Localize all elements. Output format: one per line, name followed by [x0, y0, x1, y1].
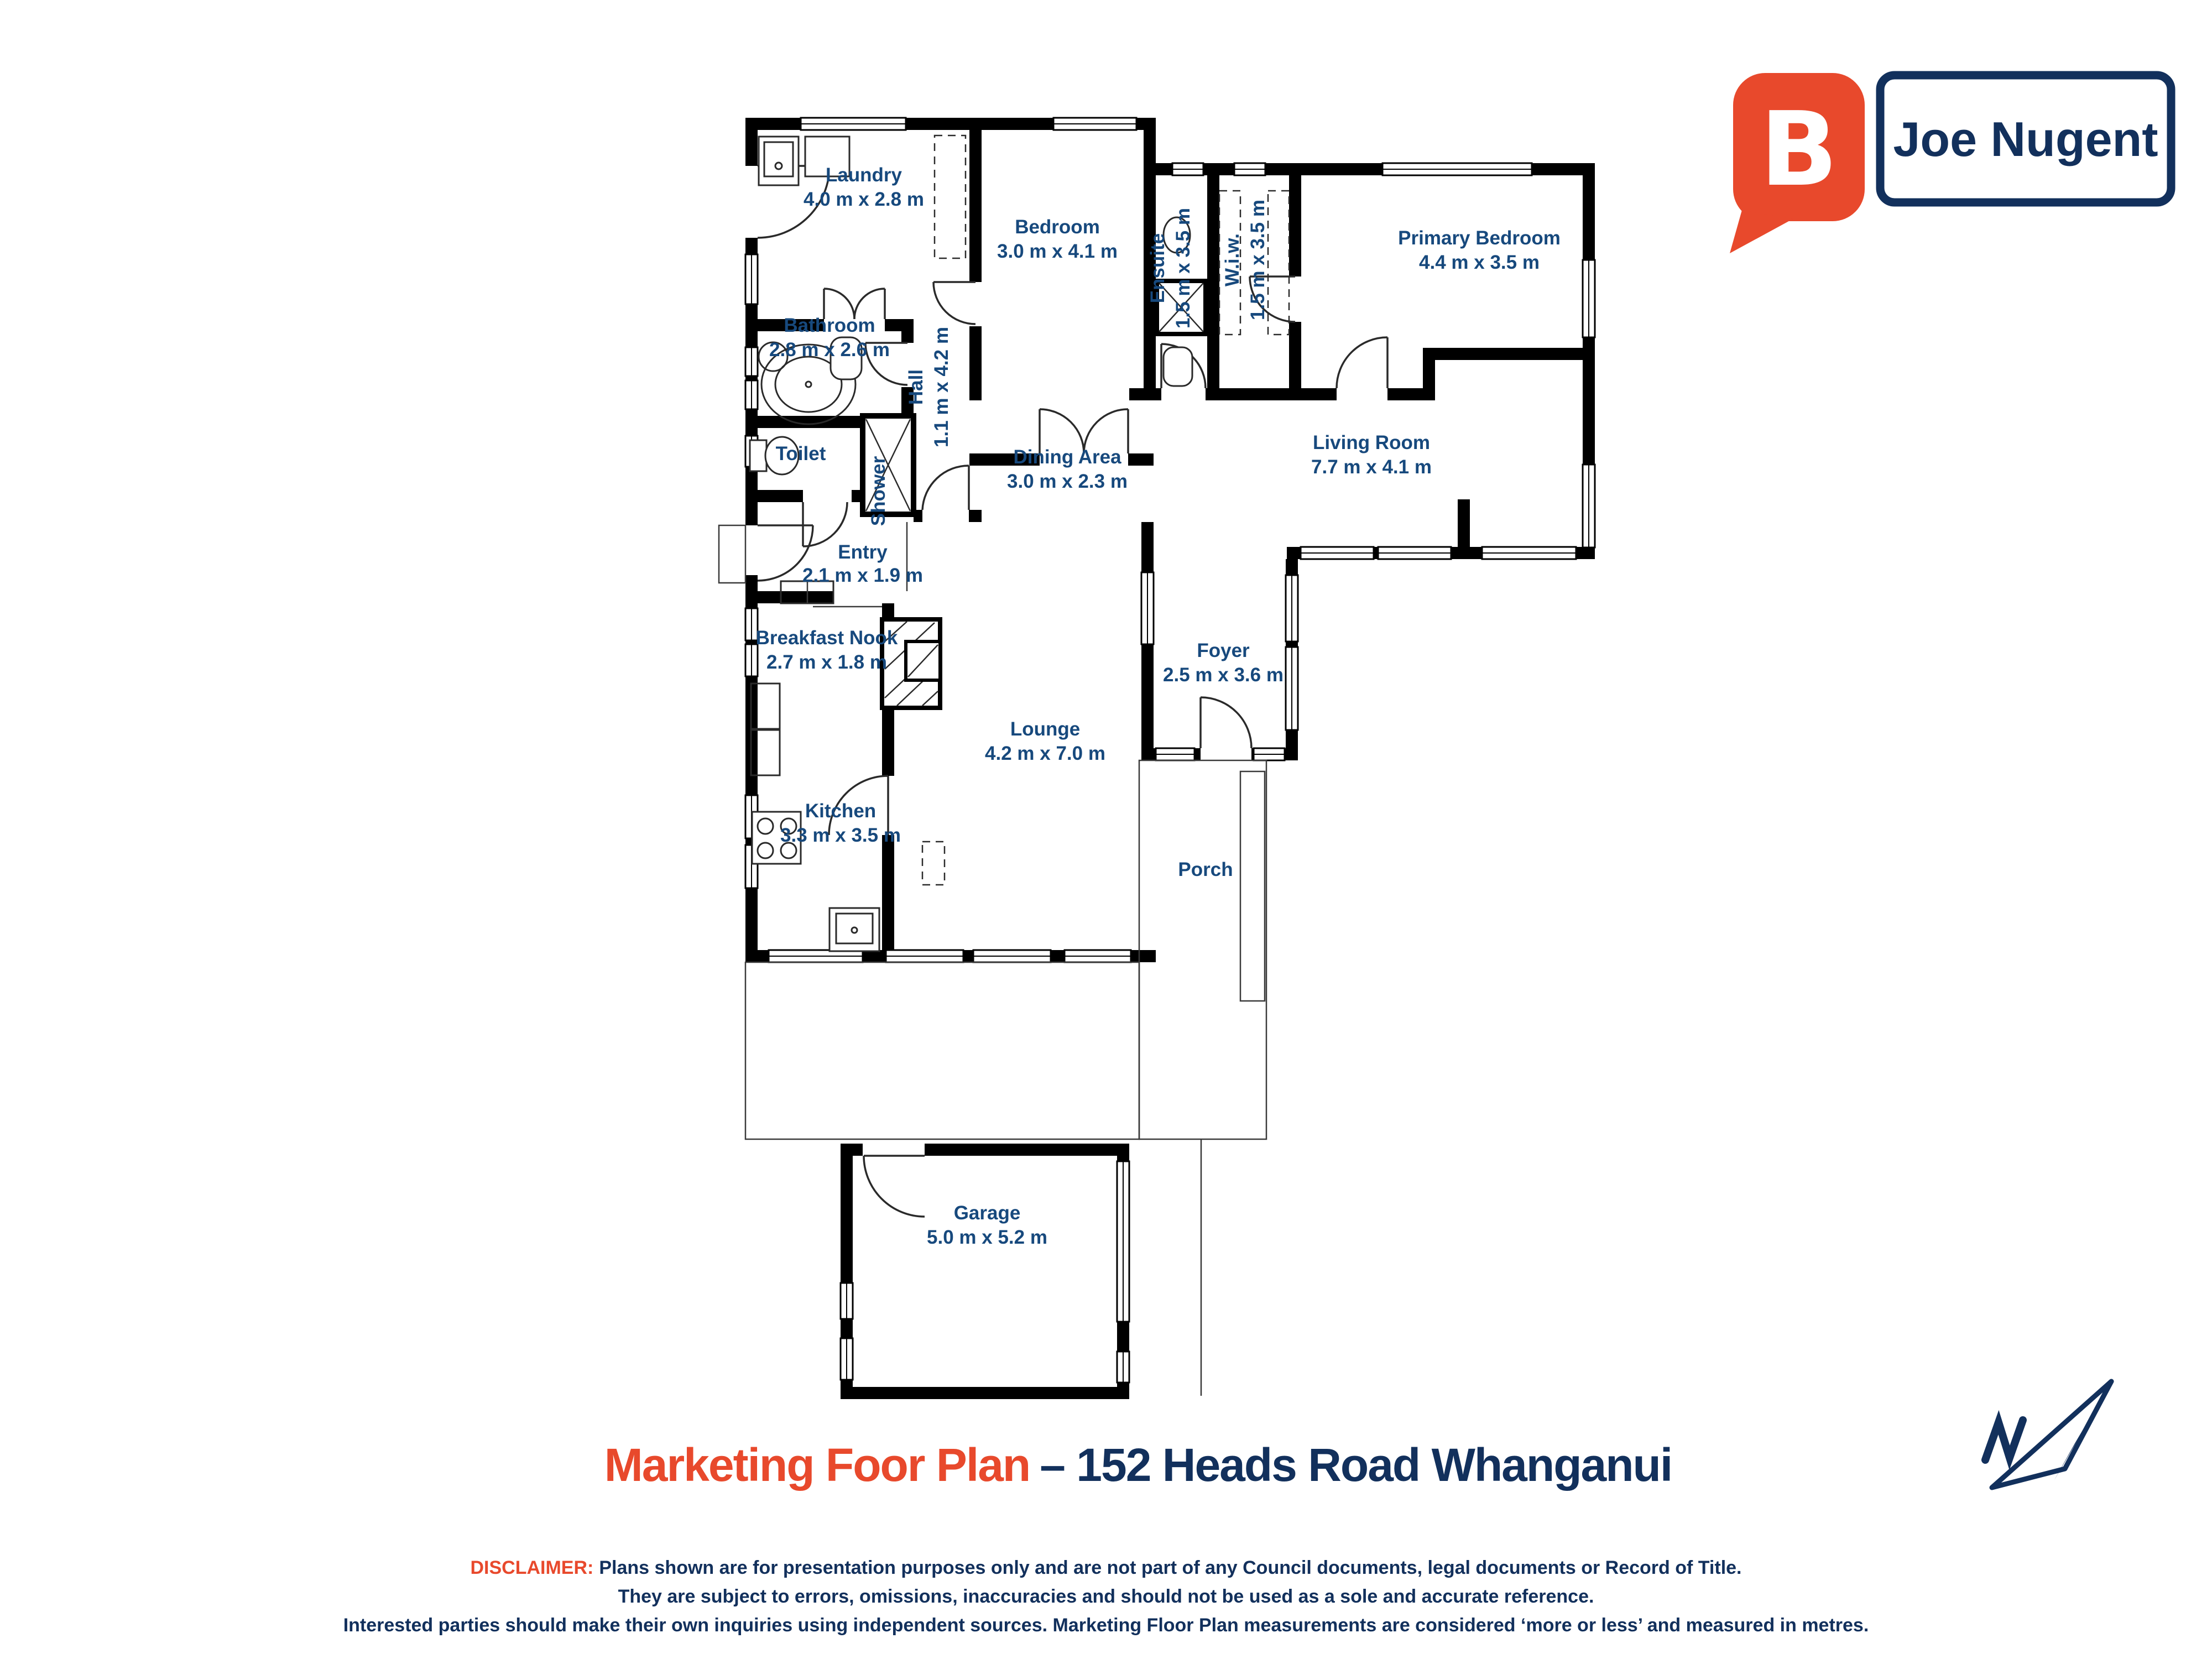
entry-step: [719, 525, 745, 583]
room-label-breakfast-nook: Breakfast Nook2.7 m x 1.8 m: [756, 627, 898, 673]
disclaimer-line-2: They are subject to errors, omissions, i…: [618, 1586, 1594, 1607]
room-label-shower: Shower: [868, 456, 889, 526]
room-label-foyer: Foyer2.5 m x 3.6 m: [1163, 640, 1284, 686]
page: Laundry4.0 m x 2.8 m Bedroom3.0 m x 4.1 …: [0, 0, 2212, 1659]
deck-outline: [745, 962, 1139, 1139]
room-label-porch: Porch: [1178, 859, 1233, 880]
floor-plan-canvas: Laundry4.0 m x 2.8 m Bedroom3.0 m x 4.1 …: [0, 0, 2212, 1659]
brand-bubble-icon: B: [1730, 73, 1865, 253]
north-letter: [1985, 1420, 2023, 1460]
logo-agent-name: Joe Nugent: [1893, 112, 2158, 166]
room-label-garage: Garage5.0 m x 5.2 m: [927, 1202, 1047, 1248]
porch-outline: [1139, 760, 1266, 1139]
disclaimer-line-1: DISCLAIMER:Plans shown are for presentat…: [470, 1557, 1741, 1578]
room-label-living-room: Living Room7.7 m x 4.1 m: [1311, 432, 1432, 478]
north-arrow-icon: [1985, 1381, 2111, 1488]
kitchen-sink-icon: [830, 908, 879, 951]
kitchen-dashed-unit: [922, 842, 945, 885]
disclaimer-line-3: Interested parties should make their own…: [343, 1615, 1869, 1636]
disclaimer: DISCLAIMER:Plans shown are for presentat…: [343, 1557, 1869, 1636]
room-label-lounge: Lounge4.2 m x 7.0 m: [985, 718, 1105, 764]
svg-text:B: B: [1760, 90, 1838, 209]
page-title: Marketing Foor Plan– 152 Heads Road Whan…: [604, 1439, 1672, 1491]
bedroom-wardrobe: [935, 135, 966, 258]
wiw-wardrobe-right: [1268, 191, 1289, 335]
agency-logo: B Joe Nugent: [1730, 73, 2171, 253]
room-label-wiw: W.i.w.1.5 m x 3.5 m: [1222, 200, 1269, 320]
room-label-bathroom: Bathroom2.8 m x 2.6 m: [769, 315, 890, 361]
room-label-entry: Entry2.1 m x 1.9 m: [802, 541, 923, 586]
room-label-toilet: Toilet: [776, 443, 826, 465]
porch-steps: [1240, 771, 1265, 1001]
room-label-bedroom: Bedroom3.0 m x 4.1 m: [997, 216, 1118, 262]
room-label-primary-bedroom: Primary Bedroom4.4 m x 3.5 m: [1398, 227, 1561, 273]
room-label-dining-area: Dining Area3.0 m x 2.3 m: [1007, 446, 1128, 492]
